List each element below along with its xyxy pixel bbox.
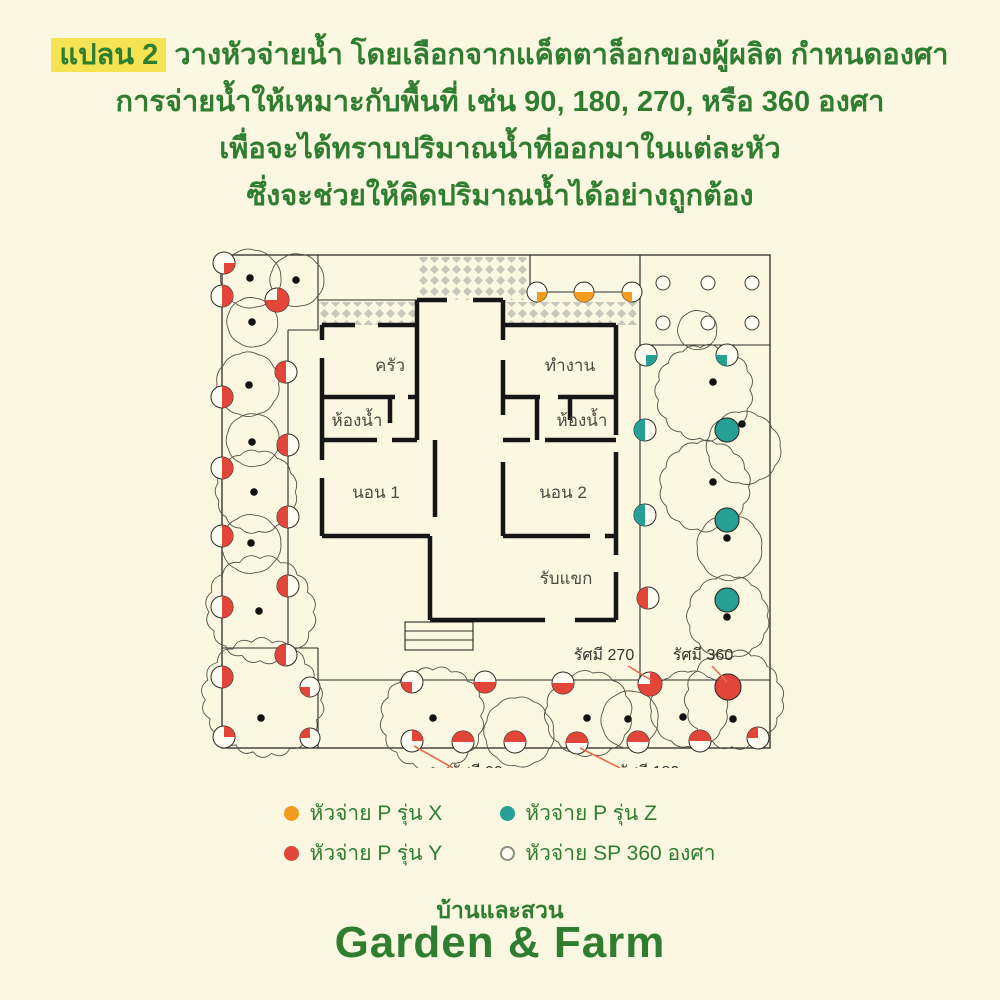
sprinkler-coverage bbox=[504, 731, 526, 742]
paving-hatch bbox=[418, 257, 528, 300]
sp360-sprinkler bbox=[701, 316, 715, 330]
sprinkler-coverage bbox=[689, 730, 711, 741]
sprinkler-coverage bbox=[715, 508, 739, 532]
sprinkler-coverage bbox=[622, 292, 632, 302]
sprinkler-coverage bbox=[537, 292, 547, 302]
sprinkler-coverage bbox=[747, 727, 758, 738]
room-label: นอน 2 bbox=[539, 483, 587, 502]
room-label: ห้องน้ำ bbox=[557, 408, 608, 430]
tree-trunk-dot bbox=[292, 276, 300, 284]
radius-leader-line bbox=[580, 748, 620, 768]
sprinkler-coverage bbox=[300, 687, 310, 697]
sprinkler-coverage bbox=[222, 525, 233, 547]
tree-trunk-dot bbox=[247, 539, 255, 547]
title-block: แปลน 2 วางหัวจ่ายน้ำ โดยเลือกจากแค็ตตาล็… bbox=[0, 32, 1000, 220]
tree-trunk-dot bbox=[255, 607, 263, 615]
sprinkler-coverage bbox=[574, 292, 594, 302]
sprinkler-coverage bbox=[224, 263, 235, 274]
sprinkler-coverage bbox=[634, 504, 645, 526]
tree-trunk-dot bbox=[679, 713, 687, 721]
tree-trunk-dot bbox=[257, 714, 265, 722]
sp360-sprinkler bbox=[745, 316, 759, 330]
sp360-sprinkler bbox=[656, 316, 670, 330]
sprinkler-coverage bbox=[412, 730, 423, 741]
sprinkler-coverage bbox=[715, 674, 741, 700]
tree-trunk-dot bbox=[248, 438, 256, 446]
radius-label: รัศมี 270 bbox=[574, 646, 635, 664]
room-label: นอน 1 bbox=[352, 483, 400, 502]
sprinkler-coverage bbox=[634, 419, 645, 441]
red-sprinkler-icon bbox=[284, 846, 299, 861]
radius-label: รัศมี 180 bbox=[619, 763, 680, 768]
sprinkler-coverage bbox=[474, 682, 496, 693]
legend-label: หัวจ่าย P รุ่น Y bbox=[309, 837, 442, 870]
tree-trunk-dot bbox=[729, 715, 737, 723]
sp360-sprinkler bbox=[745, 276, 759, 290]
radius-label: รัศมี 90 bbox=[451, 763, 503, 768]
legend-item-sp360: หัวจ่าย SP 360 องศา bbox=[500, 837, 715, 870]
sprinkler-coverage bbox=[277, 575, 288, 597]
tree-trunk-dot bbox=[248, 318, 256, 326]
legend-label: หัวจ่าย SP 360 องศา bbox=[525, 837, 715, 870]
tree-trunk-dot bbox=[429, 714, 437, 722]
legend-item-pz: หัวจ่าย P รุ่น Z bbox=[500, 797, 715, 830]
sprinkler-coverage bbox=[222, 666, 233, 688]
sp360-sprinkler bbox=[656, 276, 670, 290]
sprinkler-coverage bbox=[715, 588, 739, 612]
legend-column-left: หัวจ่าย P รุ่น X หัวจ่าย P รุ่น Y bbox=[284, 797, 442, 870]
paving-hatch bbox=[507, 302, 640, 325]
legend-label: หัวจ่าย P รุ่น Z bbox=[525, 797, 657, 830]
ring-sprinkler-icon bbox=[500, 846, 515, 861]
plan-number-highlight: แปลน 2 bbox=[51, 38, 166, 72]
sprinkler-coverage bbox=[566, 732, 588, 743]
sprinkler-coverage bbox=[300, 728, 310, 738]
sprinkler-coverage bbox=[646, 355, 657, 366]
radius-leader-line bbox=[414, 746, 453, 768]
legend-column-right: หัวจ่าย P รุ่น Z หัวจ่าย SP 360 องศา bbox=[500, 797, 715, 870]
legend: หัวจ่าย P รุ่น X หัวจ่าย P รุ่น Y หัวจ่า… bbox=[0, 797, 1000, 870]
sprinkler-coverage bbox=[627, 731, 649, 742]
legend-label: หัวจ่าย P รุ่น X bbox=[309, 797, 442, 830]
sprinkler-coverage bbox=[275, 361, 286, 383]
tree-trunk-dot bbox=[709, 478, 717, 486]
orange-sprinkler-icon bbox=[284, 806, 299, 821]
teal-sprinkler-icon bbox=[500, 806, 515, 821]
tree-trunk-dot bbox=[250, 488, 258, 496]
room-label: ครัว bbox=[375, 356, 405, 375]
sprinkler-coverage bbox=[222, 285, 233, 307]
sprinkler-coverage bbox=[452, 731, 474, 742]
room-label: ห้องน้ำ bbox=[332, 408, 383, 430]
room-label: ทำงาน bbox=[545, 356, 596, 375]
tree-trunk-dot bbox=[738, 420, 746, 428]
garden-plan: ครัวทำงานห้องน้ำห้องน้ำนอน 1นอน 2รับแขกร… bbox=[190, 240, 802, 768]
sprinkler-coverage bbox=[222, 596, 233, 618]
tree-trunk-dot bbox=[246, 274, 254, 282]
tree-trunk-dot bbox=[709, 378, 717, 386]
infographic-page: แปลน 2 วางหัวจ่ายน้ำ โดยเลือกจากแค็ตตาล็… bbox=[0, 0, 1000, 1000]
garden-plan-svg: ครัวทำงานห้องน้ำห้องน้ำนอน 1นอน 2รับแขกร… bbox=[190, 240, 802, 768]
sprinkler-coverage bbox=[715, 418, 739, 442]
paving-hatch bbox=[318, 302, 417, 325]
tree-trunk-dot bbox=[624, 715, 632, 723]
sprinkler-coverage bbox=[552, 683, 574, 694]
tree-trunk-dot bbox=[583, 714, 591, 722]
room-label: รับแขก bbox=[540, 569, 593, 588]
sprinkler-coverage bbox=[222, 386, 233, 408]
sp360-sprinkler bbox=[701, 276, 715, 290]
title-line-1: แปลน 2 วางหัวจ่ายน้ำ โดยเลือกจากแค็ตตาล็… bbox=[0, 32, 1000, 79]
sprinkler-coverage bbox=[222, 457, 233, 479]
tree-trunk-dot bbox=[723, 613, 731, 621]
legend-item-px: หัวจ่าย P รุ่น X bbox=[284, 797, 442, 830]
tree-trunk-dot bbox=[723, 534, 731, 542]
title-line-4: ซึ่งจะช่วยให้คิดปริมาณน้ำได้อย่างถูกต้อง bbox=[0, 173, 1000, 220]
sprinkler-coverage bbox=[224, 726, 235, 737]
plot-boundary bbox=[222, 255, 770, 748]
brand-logo: Garden & Farm bbox=[0, 918, 1000, 968]
stairs bbox=[405, 622, 473, 650]
title-line-1-text: วางหัวจ่ายน้ำ โดยเลือกจากแค็ตตาล็อกของผู… bbox=[166, 39, 948, 71]
sprinkler-coverage bbox=[716, 355, 727, 366]
sprinkler-coverage bbox=[401, 682, 412, 693]
title-line-3: เพื่อจะได้ทราบปริมาณน้ำที่ออกมาในแต่ละหั… bbox=[0, 126, 1000, 173]
sprinkler-coverage bbox=[275, 644, 286, 666]
tree-trunk-dot bbox=[245, 381, 253, 389]
title-line-2: การจ่ายน้ำให้เหมาะกับพื้นที่ เช่น 90, 18… bbox=[0, 79, 1000, 126]
legend-item-py: หัวจ่าย P รุ่น Y bbox=[284, 837, 442, 870]
sprinkler-coverage bbox=[637, 587, 648, 609]
radius-label: รัศมี 360 bbox=[673, 646, 734, 664]
